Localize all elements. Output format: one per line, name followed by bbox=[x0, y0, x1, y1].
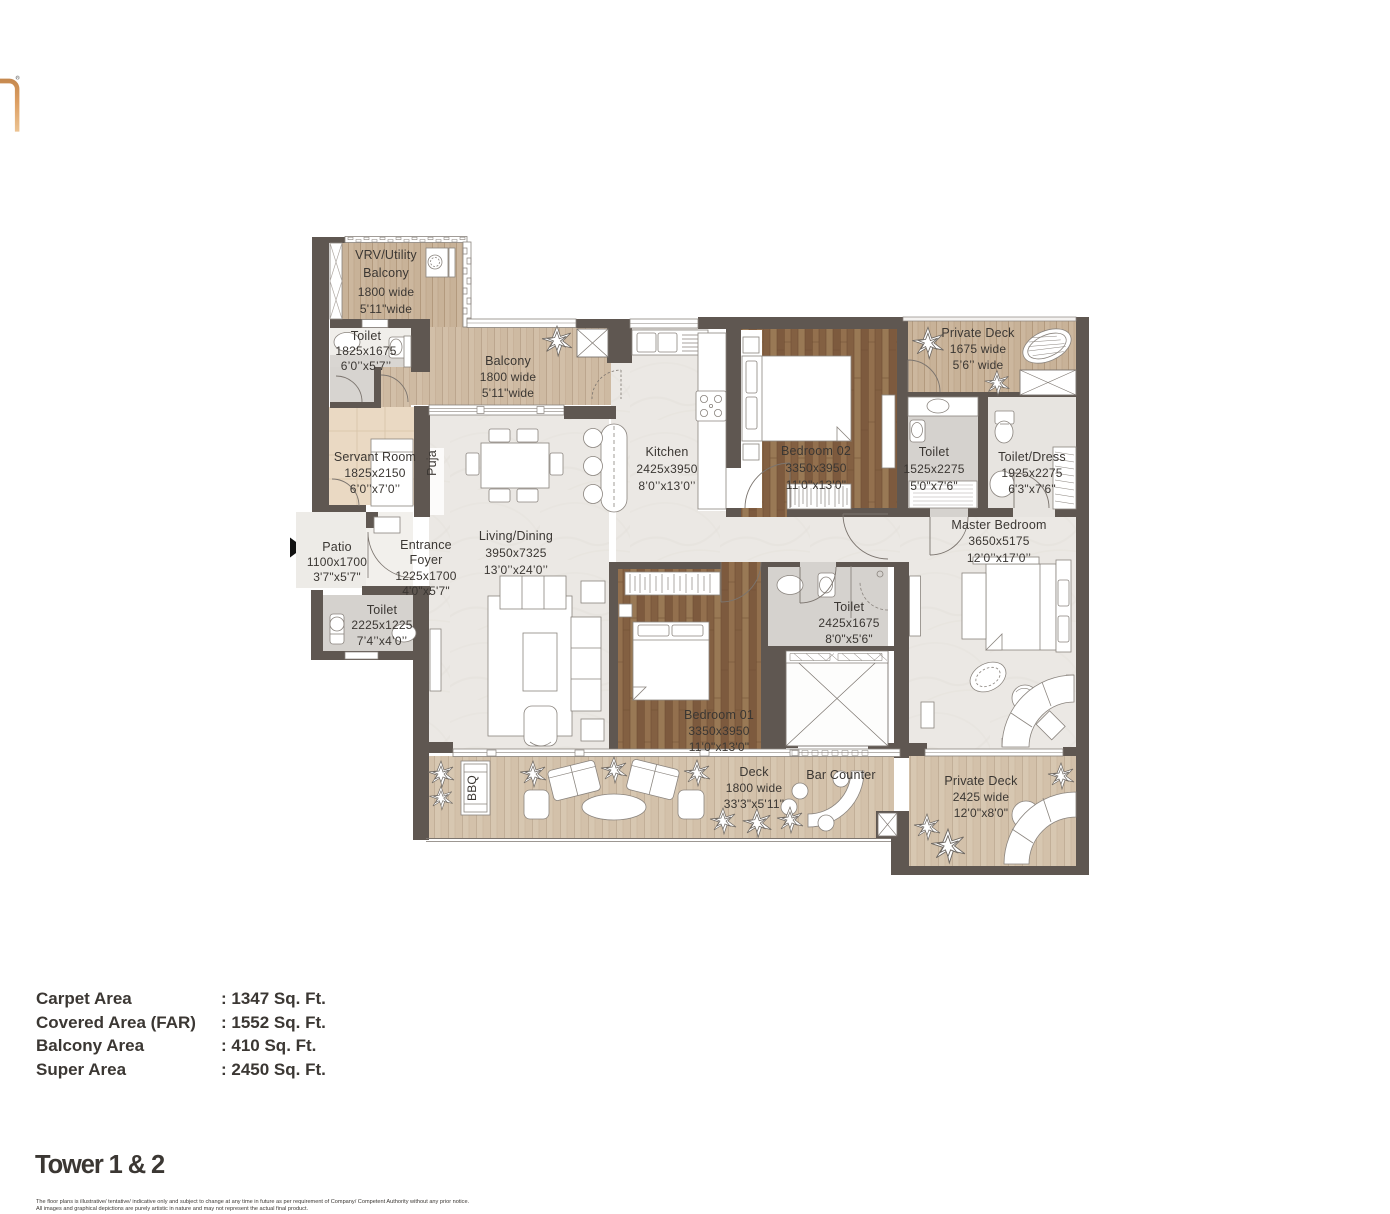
svg-text:Bedroom 02: Bedroom 02 bbox=[781, 444, 851, 458]
svg-text:1925x2275: 1925x2275 bbox=[1001, 466, 1062, 480]
svg-text:8'0"x5'6": 8'0"x5'6" bbox=[825, 632, 873, 646]
svg-text:1100x1700: 1100x1700 bbox=[307, 555, 367, 569]
svg-text:3350x3950: 3350x3950 bbox=[785, 461, 846, 475]
svg-text:3950x7325: 3950x7325 bbox=[485, 546, 546, 560]
svg-text:5’6’’ wide: 5’6’’ wide bbox=[953, 358, 1004, 372]
svg-text:6’0’’x5’7’’: 6’0’’x5’7’’ bbox=[341, 359, 391, 373]
svg-text:3350x3950: 3350x3950 bbox=[688, 724, 749, 738]
svg-text:Puja: Puja bbox=[425, 450, 439, 476]
svg-text:12'0"x8'0": 12'0"x8'0" bbox=[954, 806, 1008, 820]
svg-text:33'3"x5'11": 33'3"x5'11" bbox=[724, 797, 784, 811]
svg-text:Foyer: Foyer bbox=[410, 553, 443, 567]
svg-text:Bedroom 01: Bedroom 01 bbox=[684, 708, 754, 722]
svg-text:1825x1675: 1825x1675 bbox=[335, 344, 396, 358]
svg-text:: 1552 Sq. Ft.: : 1552 Sq. Ft. bbox=[221, 1013, 326, 1032]
svg-text:2225x1225: 2225x1225 bbox=[351, 618, 412, 632]
svg-text:Toilet/Dress: Toilet/Dress bbox=[998, 450, 1066, 464]
svg-text:11'0"x13'0": 11'0"x13'0" bbox=[689, 740, 749, 754]
svg-text:2425x3950: 2425x3950 bbox=[636, 462, 697, 476]
svg-text:3650x5175: 3650x5175 bbox=[968, 534, 1029, 548]
svg-text:The floor plans is illustrativ: The floor plans is illustrative/ tentati… bbox=[36, 1199, 470, 1205]
svg-text:1675 wide: 1675 wide bbox=[950, 342, 1007, 356]
svg-text:Master Bedroom: Master Bedroom bbox=[951, 518, 1046, 532]
svg-text:4'0"x5'7": 4'0"x5'7" bbox=[402, 584, 450, 598]
svg-text:Balcony: Balcony bbox=[485, 354, 531, 368]
svg-text:Super Area: Super Area bbox=[36, 1060, 127, 1079]
svg-text:Servant Room: Servant Room bbox=[334, 450, 416, 464]
svg-text:2425x1675: 2425x1675 bbox=[818, 616, 879, 630]
svg-text:12’0’’x17’0’’: 12’0’’x17’0’’ bbox=[967, 551, 1031, 565]
svg-text:Bar Counter: Bar Counter bbox=[806, 768, 876, 782]
svg-text:3'7"x5'7": 3'7"x5'7" bbox=[313, 570, 361, 584]
svg-text:5'0"x7'6": 5'0"x7'6" bbox=[910, 479, 958, 493]
svg-text:Balcony: Balcony bbox=[363, 266, 409, 280]
svg-text:5'11"wide: 5'11"wide bbox=[482, 386, 534, 400]
svg-text:Private Deck: Private Deck bbox=[944, 774, 1018, 788]
svg-text:Covered Area (FAR): Covered Area (FAR) bbox=[36, 1013, 196, 1032]
svg-text:Private Deck: Private Deck bbox=[941, 326, 1015, 340]
svg-text:Deck: Deck bbox=[739, 765, 769, 779]
svg-text:8’0’’x13’0’’: 8’0’’x13’0’’ bbox=[638, 479, 695, 493]
svg-text:Tower 1 & 2: Tower 1 & 2 bbox=[35, 1151, 165, 1179]
svg-text:: 2450 Sq. Ft.: : 2450 Sq. Ft. bbox=[221, 1060, 326, 1079]
svg-text:6’0’’x7’0’’: 6’0’’x7’0’’ bbox=[350, 482, 400, 496]
svg-text:Toilet: Toilet bbox=[834, 600, 865, 614]
svg-text:1825x2150: 1825x2150 bbox=[344, 466, 405, 480]
svg-text:: 1347 Sq. Ft.: : 1347 Sq. Ft. bbox=[221, 989, 326, 1008]
svg-text:Living/Dining: Living/Dining bbox=[479, 529, 553, 543]
svg-text:Patio: Patio bbox=[322, 540, 352, 554]
svg-text:BBQ: BBQ bbox=[465, 775, 479, 801]
svg-text:1225x1700: 1225x1700 bbox=[395, 569, 456, 583]
svg-text:13’0’’x24’0’’: 13’0’’x24’0’’ bbox=[484, 563, 548, 577]
svg-text:5'11"wide: 5'11"wide bbox=[360, 302, 412, 316]
svg-text:Toilet: Toilet bbox=[351, 329, 382, 343]
svg-text:1800 wide: 1800 wide bbox=[480, 370, 537, 384]
svg-text:Toilet: Toilet bbox=[919, 445, 950, 459]
svg-text:7’4’’x4’0’’: 7’4’’x4’0’’ bbox=[357, 634, 407, 648]
svg-text:All images and graphical depic: All images and graphical depictions are … bbox=[36, 1206, 309, 1212]
svg-text:: 410 Sq. Ft.: : 410 Sq. Ft. bbox=[221, 1036, 316, 1055]
svg-text:1800 wide: 1800 wide bbox=[726, 781, 783, 795]
svg-text:Carpet Area: Carpet Area bbox=[36, 989, 132, 1008]
svg-text:Balcony Area: Balcony Area bbox=[36, 1036, 145, 1055]
svg-text:2425 wide: 2425 wide bbox=[953, 790, 1010, 804]
svg-text:11'0"x13'0": 11'0"x13'0" bbox=[786, 478, 846, 492]
svg-text:6'3"x7'6": 6'3"x7'6" bbox=[1008, 482, 1056, 496]
svg-text:Toilet: Toilet bbox=[367, 603, 398, 617]
svg-text:1525x2275: 1525x2275 bbox=[903, 462, 964, 476]
svg-text:Entrance: Entrance bbox=[400, 538, 452, 552]
svg-text:1800 wide: 1800 wide bbox=[358, 285, 415, 299]
svg-text:VRV/Utility: VRV/Utility bbox=[355, 248, 417, 262]
svg-text:Kitchen: Kitchen bbox=[645, 445, 688, 459]
